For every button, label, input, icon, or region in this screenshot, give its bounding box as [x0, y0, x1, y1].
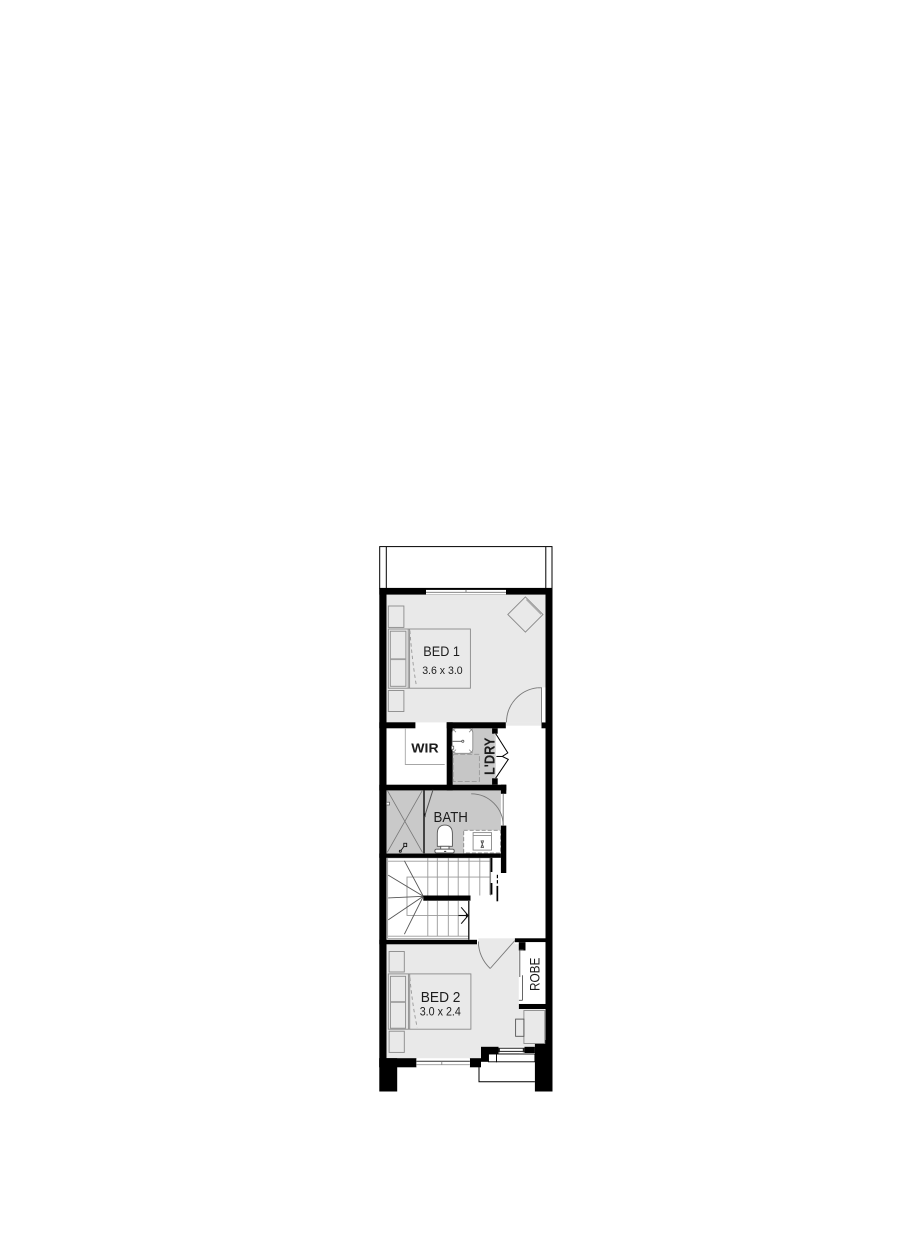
svg-text:BED 2: BED 2: [421, 989, 461, 1006]
svg-text:L'DRY: L'DRY: [482, 737, 498, 775]
svg-text:3.6 x 3.0: 3.6 x 3.0: [422, 665, 463, 677]
svg-text:BED 1: BED 1: [423, 643, 460, 659]
svg-text:ROBE: ROBE: [527, 958, 543, 991]
svg-text:WIR: WIR: [411, 741, 438, 755]
svg-text:BATH: BATH: [434, 809, 468, 826]
svg-text:3.0 x 2.4: 3.0 x 2.4: [420, 1006, 462, 1018]
